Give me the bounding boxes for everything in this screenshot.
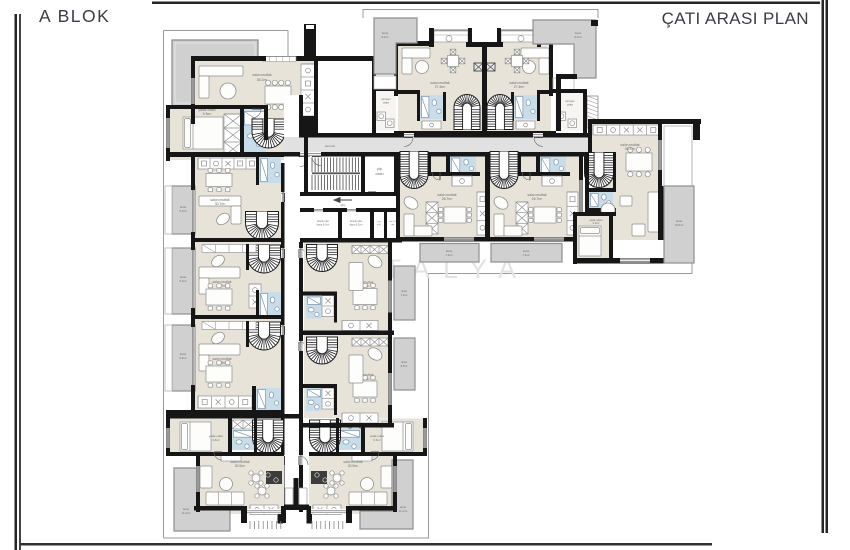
svg-text:kat holü: kat holü [325,144,335,148]
svg-text:ÇATI ARASI PLAN: ÇATI ARASI PLAN [662,9,809,28]
svg-text:7.4m²: 7.4m² [445,253,452,257]
svg-text:27.4m²: 27.4m² [514,85,525,89]
svg-text:27.4m²: 27.4m² [435,85,446,89]
svg-text:kel.1,2: kel.1,2 [389,221,396,223]
svg-text:5.2m²: 5.2m² [179,209,186,213]
svg-text:30.9m²: 30.9m² [235,464,246,468]
svg-text:odası: odası [383,101,390,105]
svg-text:depo 6.2m²: depo 6.2m² [350,224,363,227]
svg-text:teras: teras [401,289,407,293]
svg-text:9.0m²: 9.0m² [381,35,388,39]
svg-text:5.2m²: 5.2m² [179,356,186,360]
svg-text:giriş: giriş [341,203,346,207]
svg-text:odası: odası [567,103,574,107]
svg-text:26.7m²: 26.7m² [532,197,543,201]
svg-text:odası: odası [375,172,383,176]
svg-text:çamaşır: çamaşır [565,99,574,103]
svg-text:11.2m²: 11.2m² [182,511,191,515]
svg-text:ocğ.: ocğ. [377,223,382,226]
svg-text:salon mutfak: salon mutfak [252,73,272,77]
svg-text:7.4m²: 7.4m² [522,253,529,257]
svg-text:9.6m²: 9.6m² [212,438,219,442]
svg-text:26.7m²: 26.7m² [442,197,453,201]
svg-text:36.5m²: 36.5m² [625,147,636,151]
svg-text:depo 6.2m²: depo 6.2m² [317,224,330,227]
svg-text:A BLOK: A BLOK [39,6,110,26]
svg-text:7.4m²: 7.4m² [401,293,408,297]
svg-text:çöp: çöp [377,167,383,171]
svg-text:11.2m²: 11.2m² [399,509,408,513]
svg-text:9.6m²: 9.6m² [373,438,380,442]
svg-text:8.5m²: 8.5m² [401,364,408,368]
svg-text:teras: teras [401,360,407,364]
svg-text:30.9m²: 30.9m² [348,464,359,468]
svg-text:10.0m²: 10.0m² [675,223,684,227]
svg-text:9.0m²: 9.0m² [593,221,600,225]
svg-text:30.7m²: 30.7m² [215,202,226,206]
svg-text:9.3m²: 9.3m² [203,112,213,116]
svg-text:çamaşır: çamaşır [381,97,390,101]
svg-text:5.2m²: 5.2m² [179,279,186,283]
svg-text:9.0m²: 9.0m² [574,35,581,39]
